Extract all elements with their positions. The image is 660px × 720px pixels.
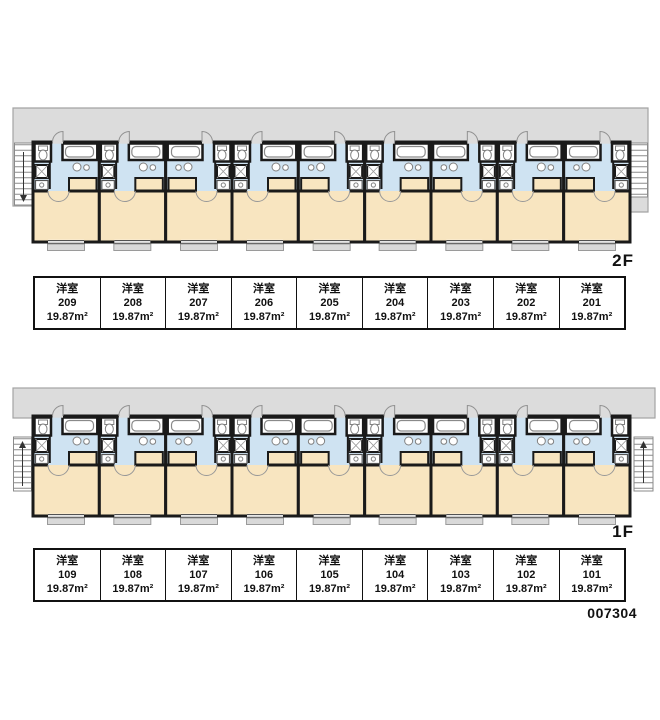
unit-plan <box>564 406 630 525</box>
unit-plan <box>99 132 165 251</box>
unit-area: 19.87m² <box>101 310 166 324</box>
unit-number: 203 <box>428 296 493 310</box>
unit-plan <box>564 132 630 251</box>
unit-number: 207 <box>166 296 231 310</box>
unit-type: 洋室 <box>560 554 625 568</box>
unit-number: 201 <box>560 296 625 310</box>
unit-cell: 洋室 205 19.87m² <box>296 278 362 328</box>
unit-type: 洋室 <box>166 554 231 568</box>
unit-cell: 洋室 102 19.87m² <box>493 550 559 600</box>
unit-area: 19.87m² <box>363 582 428 596</box>
unit-type: 洋室 <box>560 282 625 296</box>
unit-area: 19.87m² <box>363 310 428 324</box>
floor-plan-1f <box>0 383 660 533</box>
unit-type: 洋室 <box>494 282 559 296</box>
unit-table-2f: 洋室 209 19.87m² 洋室 208 19.87m² 洋室 207 19.… <box>33 276 626 330</box>
plan-id: 007304 <box>587 605 637 621</box>
unit-type: 洋室 <box>428 282 493 296</box>
unit-plan <box>33 132 99 251</box>
unit-cell: 洋室 206 19.87m² <box>231 278 297 328</box>
floor-label-2f: 2F <box>612 251 634 271</box>
unit-plan <box>365 406 431 525</box>
unit-area: 19.87m² <box>494 582 559 596</box>
unit-number: 105 <box>297 568 362 582</box>
unit-area: 19.87m² <box>428 310 493 324</box>
unit-cell: 洋室 201 19.87m² <box>559 278 625 328</box>
unit-area: 19.87m² <box>166 582 231 596</box>
floor-plan-2f <box>0 100 660 262</box>
floor-plan-page: 2F 洋室 209 19.87m² 洋室 208 19.87m² 洋室 207 … <box>0 0 660 720</box>
unit-type: 洋室 <box>101 554 166 568</box>
unit-cell: 洋室 202 19.87m² <box>493 278 559 328</box>
unit-number: 104 <box>363 568 428 582</box>
unit-area: 19.87m² <box>428 582 493 596</box>
unit-area: 19.87m² <box>560 582 625 596</box>
unit-area: 19.87m² <box>35 582 100 596</box>
unit-cell: 洋室 105 19.87m² <box>296 550 362 600</box>
unit-area: 19.87m² <box>232 582 297 596</box>
unit-number: 209 <box>35 296 100 310</box>
unit-plan <box>298 132 364 251</box>
unit-cell: 洋室 108 19.87m² <box>100 550 166 600</box>
unit-area: 19.87m² <box>232 310 297 324</box>
unit-cell: 洋室 107 19.87m² <box>165 550 231 600</box>
unit-number: 205 <box>297 296 362 310</box>
staircase-left <box>15 143 33 205</box>
unit-cell: 洋室 104 19.87m² <box>362 550 428 600</box>
unit-cell: 洋室 209 19.87m² <box>35 278 100 328</box>
unit-type: 洋室 <box>297 282 362 296</box>
unit-plan <box>33 406 99 525</box>
unit-cell: 洋室 204 19.87m² <box>362 278 428 328</box>
unit-plan <box>232 406 298 525</box>
unit-table-1f: 洋室 109 19.87m² 洋室 108 19.87m² 洋室 107 19.… <box>33 548 626 602</box>
unit-area: 19.87m² <box>494 310 559 324</box>
unit-number: 109 <box>35 568 100 582</box>
unit-plan <box>298 406 364 525</box>
unit-plan <box>232 132 298 251</box>
unit-number: 101 <box>560 568 625 582</box>
unit-type: 洋室 <box>428 554 493 568</box>
unit-type: 洋室 <box>363 282 428 296</box>
staircase-left <box>14 437 32 491</box>
unit-plan <box>166 406 232 525</box>
unit-plan <box>497 406 563 525</box>
staircase-right <box>630 143 648 197</box>
unit-area: 19.87m² <box>166 310 231 324</box>
unit-number: 206 <box>232 296 297 310</box>
walkway-band <box>13 388 655 418</box>
unit-plan <box>365 132 431 251</box>
unit-number: 106 <box>232 568 297 582</box>
unit-plan <box>431 406 497 525</box>
unit-cell: 洋室 207 19.87m² <box>165 278 231 328</box>
unit-plan <box>99 406 165 525</box>
unit-cell: 洋室 203 19.87m² <box>427 278 493 328</box>
floor-label-1f: 1F <box>612 522 634 542</box>
unit-type: 洋室 <box>35 282 100 296</box>
unit-cell: 洋室 109 19.87m² <box>35 550 100 600</box>
unit-area: 19.87m² <box>297 582 362 596</box>
unit-plan <box>497 132 563 251</box>
unit-number: 202 <box>494 296 559 310</box>
unit-cell: 洋室 106 19.87m² <box>231 550 297 600</box>
unit-cell: 洋室 101 19.87m² <box>559 550 625 600</box>
unit-number: 103 <box>428 568 493 582</box>
unit-number: 208 <box>101 296 166 310</box>
unit-type: 洋室 <box>363 554 428 568</box>
unit-number: 102 <box>494 568 559 582</box>
unit-area: 19.87m² <box>101 582 166 596</box>
unit-cell: 洋室 208 19.87m² <box>100 278 166 328</box>
unit-area: 19.87m² <box>560 310 625 324</box>
unit-area: 19.87m² <box>35 310 100 324</box>
staircase-right <box>634 437 653 491</box>
unit-number: 204 <box>363 296 428 310</box>
unit-plan <box>166 132 232 251</box>
unit-number: 107 <box>166 568 231 582</box>
unit-type: 洋室 <box>297 554 362 568</box>
unit-type: 洋室 <box>35 554 100 568</box>
unit-type: 洋室 <box>232 282 297 296</box>
unit-plan <box>431 132 497 251</box>
unit-type: 洋室 <box>494 554 559 568</box>
unit-type: 洋室 <box>166 282 231 296</box>
unit-area: 19.87m² <box>297 310 362 324</box>
unit-number: 108 <box>101 568 166 582</box>
unit-type: 洋室 <box>232 554 297 568</box>
unit-cell: 洋室 103 19.87m² <box>427 550 493 600</box>
unit-type: 洋室 <box>101 282 166 296</box>
